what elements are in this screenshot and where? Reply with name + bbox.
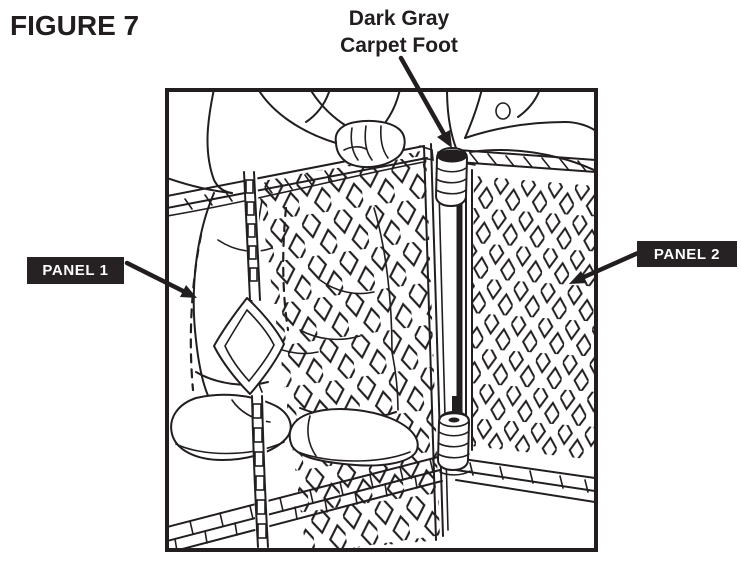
panel-1-arrow bbox=[127, 263, 197, 298]
panel-1-label-text: PANEL 1 bbox=[42, 262, 108, 279]
figure-7-page: FIGURE 7 Dark Gray Carpet Foot PANEL 1 P… bbox=[0, 0, 741, 567]
panel-2-label-text: PANEL 2 bbox=[654, 246, 720, 263]
carpet-foot-arrow bbox=[401, 58, 452, 148]
carpet-foot-callout: Dark Gray Carpet Foot bbox=[299, 5, 499, 60]
panel-2-label: PANEL 2 bbox=[637, 241, 737, 267]
carpet-foot-callout-line2: Carpet Foot bbox=[299, 32, 499, 59]
carpet-foot-callout-line1: Dark Gray bbox=[299, 5, 499, 32]
figure-title: FIGURE 7 bbox=[10, 10, 139, 42]
hinge-pole bbox=[452, 200, 463, 416]
panel-2 bbox=[456, 150, 595, 502]
hand-gripping-rail bbox=[336, 121, 405, 167]
carpet-foot-top bbox=[436, 148, 467, 206]
panel-2-mesh bbox=[471, 176, 595, 460]
carpet-foot-bottom bbox=[438, 412, 470, 475]
panel-1-label: PANEL 1 bbox=[27, 257, 124, 284]
